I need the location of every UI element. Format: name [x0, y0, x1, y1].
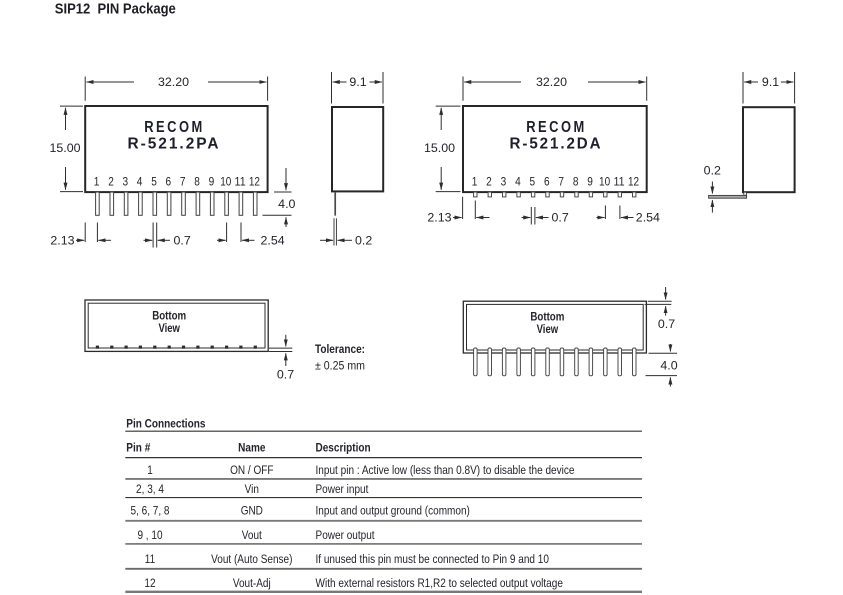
svg-text:2.54: 2.54 [636, 211, 660, 225]
svg-text:9: 9 [209, 175, 215, 189]
svg-text:9: 9 [587, 175, 593, 189]
svg-text:4.0: 4.0 [660, 359, 677, 373]
svg-text:5: 5 [530, 175, 536, 189]
svg-text:5, 6, 7, 8: 5, 6, 7, 8 [131, 504, 170, 518]
svg-text:Power input: Power input [316, 482, 369, 496]
svg-text:2.54: 2.54 [261, 234, 285, 248]
svg-text:11: 11 [235, 175, 246, 189]
svg-text:1: 1 [94, 175, 100, 189]
svg-text:GND: GND [241, 504, 263, 518]
svg-text:Vout-Adj: Vout-Adj [233, 576, 271, 590]
svg-text:7: 7 [180, 175, 186, 189]
svg-text:10: 10 [599, 175, 610, 189]
svg-text:12: 12 [628, 175, 639, 189]
svg-text:2: 2 [108, 175, 114, 189]
svg-text:1: 1 [147, 463, 153, 477]
svg-text:6: 6 [166, 175, 172, 189]
svg-text:4: 4 [515, 175, 521, 189]
svg-text:3: 3 [123, 175, 129, 189]
svg-text:Power output: Power output [316, 528, 376, 542]
svg-text:32.20: 32.20 [158, 75, 189, 89]
svg-text:2: 2 [486, 175, 492, 189]
svg-text:11: 11 [613, 175, 624, 189]
svg-text:2, 3, 4: 2, 3, 4 [136, 482, 164, 496]
svg-text:0.7: 0.7 [552, 211, 569, 225]
svg-text:9.1: 9.1 [349, 75, 366, 89]
svg-text:R-521.2DA: R-521.2DA [510, 136, 603, 153]
svg-text:RECOM: RECOM [144, 119, 205, 136]
svg-text:Pin #: Pin # [126, 440, 150, 454]
svg-text:0.2: 0.2 [704, 163, 721, 177]
svg-text:5: 5 [151, 175, 157, 189]
svg-text:ON / OFF: ON / OFF [230, 463, 274, 477]
svg-text:With external resistors R1,R2: With external resistors R1,R2 to selecte… [316, 576, 564, 590]
svg-text:Name: Name [238, 440, 265, 454]
svg-text:4: 4 [137, 175, 143, 189]
svg-text:0.7: 0.7 [658, 317, 675, 331]
svg-text:12: 12 [144, 576, 155, 590]
svg-text:15.00: 15.00 [424, 141, 455, 155]
svg-text:1: 1 [472, 175, 478, 189]
svg-text:6: 6 [544, 175, 550, 189]
svg-text:Input and output ground (commo: Input and output ground (common) [316, 504, 470, 518]
svg-text:View: View [158, 321, 180, 335]
svg-text:If unused this pin must be con: If unused this pin must be connected to … [316, 552, 550, 566]
svg-text:15.00: 15.00 [49, 141, 80, 155]
svg-text:Vout (Auto Sense): Vout (Auto Sense) [211, 552, 292, 566]
svg-text:Tolerance:: Tolerance: [315, 342, 365, 356]
svg-text:Vout: Vout [242, 528, 262, 542]
svg-text:0.7: 0.7 [174, 234, 191, 248]
svg-text:11: 11 [145, 552, 156, 566]
svg-text:SIP12 PIN Package: SIP12 PIN Package [55, 1, 176, 18]
svg-text:Pin Connections: Pin Connections [126, 416, 205, 430]
svg-text:± 0.25 mm: ± 0.25 mm [315, 358, 365, 372]
svg-text:View: View [537, 322, 559, 336]
svg-text:4.0: 4.0 [278, 197, 295, 211]
svg-text:RECOM: RECOM [526, 119, 587, 136]
svg-text:10: 10 [220, 175, 231, 189]
svg-text:8: 8 [573, 175, 579, 189]
svg-text:9.1: 9.1 [762, 75, 779, 89]
svg-text:Vin: Vin [245, 482, 259, 496]
svg-text:32.20: 32.20 [536, 75, 567, 89]
svg-text:3: 3 [501, 175, 507, 189]
svg-text:8: 8 [194, 175, 200, 189]
svg-text:Description: Description [316, 440, 371, 454]
svg-text:0.7: 0.7 [277, 368, 294, 382]
svg-text:2.13: 2.13 [50, 234, 74, 248]
svg-text:12: 12 [249, 175, 260, 189]
svg-text:7: 7 [558, 175, 564, 189]
svg-text:0.2: 0.2 [355, 234, 372, 248]
svg-text:2.13: 2.13 [427, 211, 451, 225]
svg-text:R-521.2PA: R-521.2PA [128, 136, 221, 153]
svg-text:9 , 10: 9 , 10 [137, 528, 162, 542]
svg-text:Input pin : Active low (less t: Input pin : Active low (less than 0.8V) … [316, 463, 575, 477]
